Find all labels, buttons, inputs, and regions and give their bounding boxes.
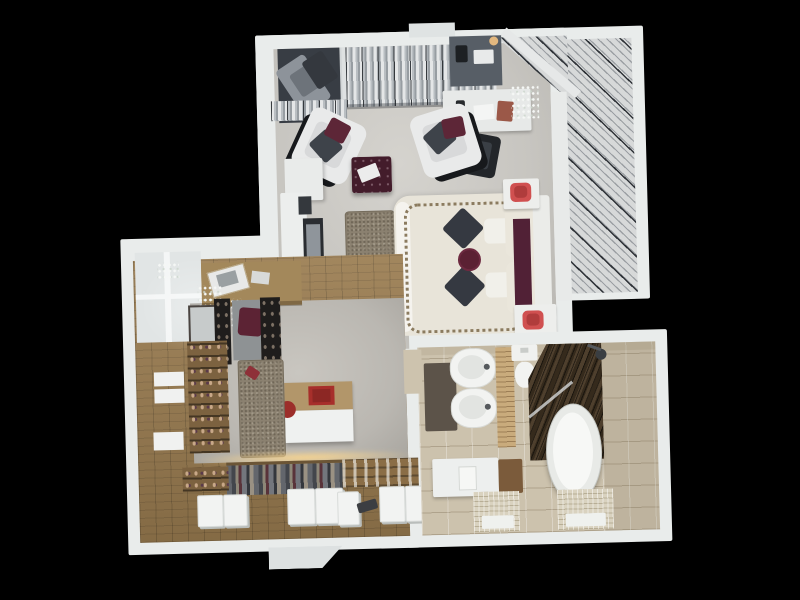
desk-paper	[473, 104, 494, 121]
wall-box-2	[154, 389, 184, 404]
stool-5	[337, 491, 360, 526]
shoe-wall-column	[187, 341, 230, 454]
stool-6	[379, 486, 406, 523]
bath-bench-object	[458, 466, 477, 490]
slat-bench	[495, 347, 516, 447]
accessories-shelf	[342, 458, 419, 488]
sink-1-faucet	[484, 364, 490, 370]
bed-runner	[513, 219, 532, 311]
bottom-tab	[268, 546, 343, 570]
stage	[0, 0, 800, 600]
bath-bench-wood-end	[498, 459, 523, 494]
closet-flowers-3	[157, 262, 179, 281]
island-tray-inner	[312, 389, 330, 402]
toilet-button	[520, 348, 528, 353]
stool-1	[197, 495, 224, 528]
stool-3	[287, 488, 316, 525]
lamp-2-shade	[526, 313, 539, 325]
wall-box-3	[153, 432, 183, 451]
shoe-row	[182, 467, 229, 492]
cabinet-tray	[473, 49, 493, 64]
cubby-column-2	[260, 297, 282, 366]
bathroom-door-gap	[403, 349, 422, 393]
balcony-deck-side	[563, 38, 638, 294]
floor-mat-1	[482, 515, 514, 529]
cabinet-pot	[455, 45, 467, 62]
wall-box-1	[154, 372, 184, 387]
desk-flowers	[510, 84, 539, 119]
armchair-2-pillow-maroon	[441, 116, 467, 140]
lamp-1-shade	[514, 186, 527, 198]
floorplan	[0, 0, 800, 600]
island-base	[285, 409, 354, 443]
roof-tab	[409, 22, 455, 37]
vanity-frame-2	[251, 271, 270, 285]
stool-2	[223, 494, 248, 527]
floor-mat-2	[566, 513, 606, 527]
frame-small	[298, 196, 311, 214]
